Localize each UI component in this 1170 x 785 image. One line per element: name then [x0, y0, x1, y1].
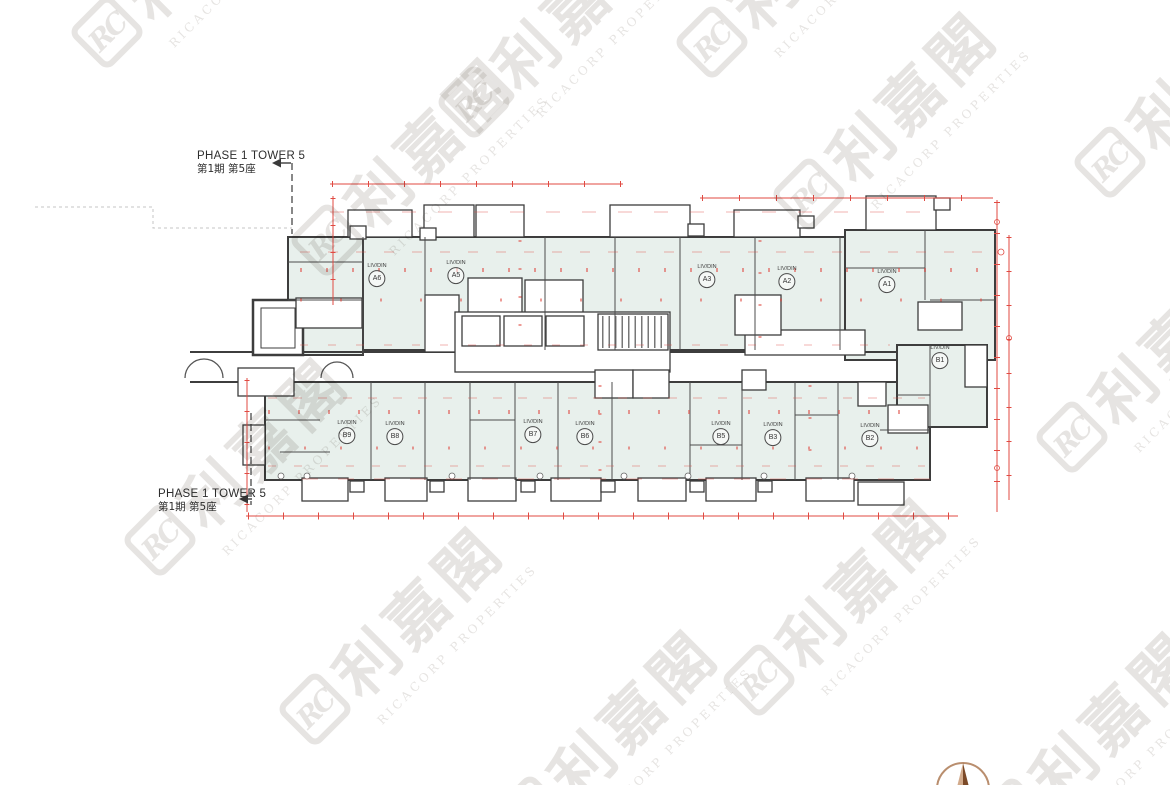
phase-tower-marker-bottom: PHASE 1 TOWER 5 第1期 第5座 [158, 487, 266, 515]
north-compass-icon [937, 763, 989, 785]
marker-title: PHASE 1 TOWER 5 [197, 149, 305, 163]
phase-tower-marker-top: PHASE 1 TOWER 5 第1期 第5座 [197, 149, 305, 177]
marker-title: PHASE 1 TOWER 5 [158, 487, 266, 501]
marker-subtitle: 第1期 第5座 [158, 501, 266, 514]
floor-plan-page: LIV/DIN A6 LIV/DIN A5 LIV/DIN A3 LIV/DIN… [0, 0, 1170, 785]
floor-plan-drawing [0, 0, 1170, 785]
marker-subtitle: 第1期 第5座 [197, 163, 305, 176]
